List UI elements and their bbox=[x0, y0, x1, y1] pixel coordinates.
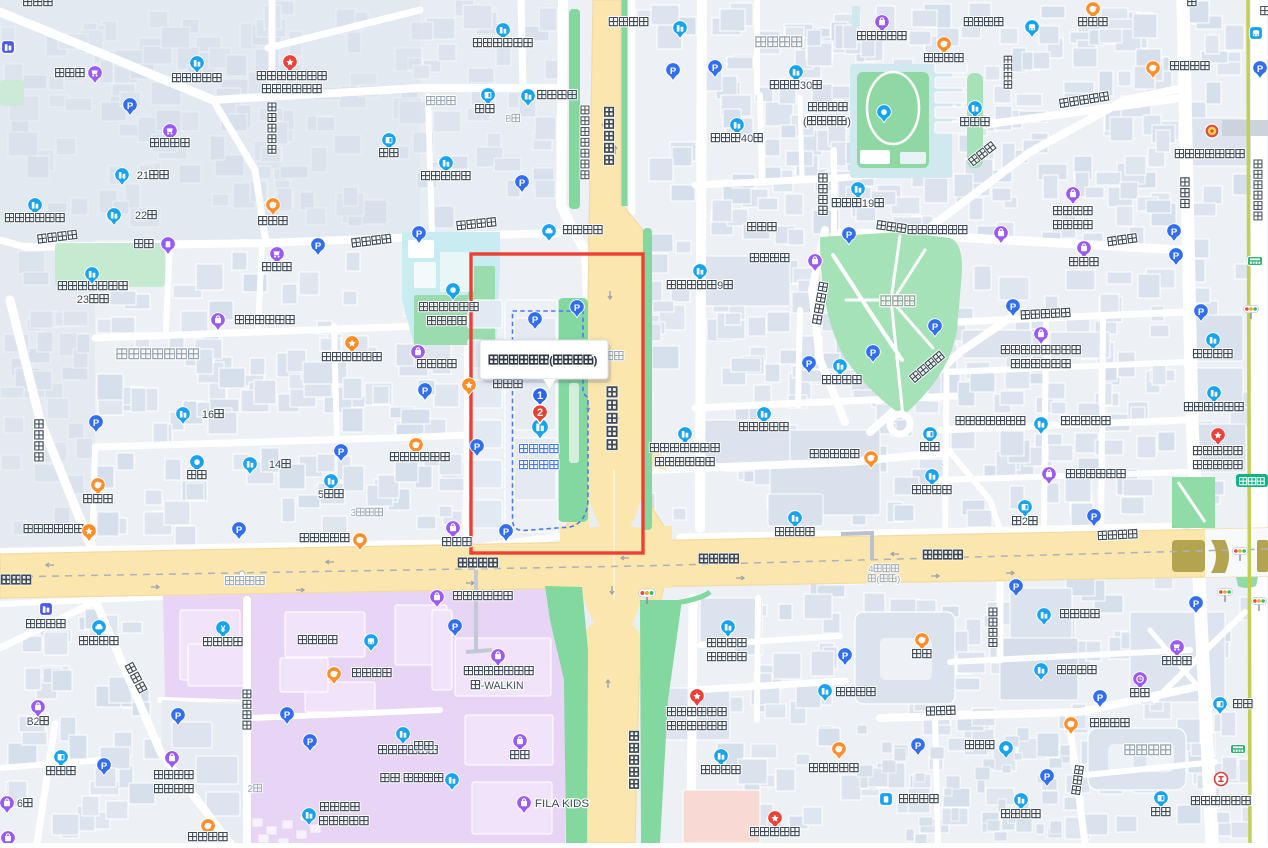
svg-text:): ) bbox=[594, 355, 598, 367]
svg-text:P: P bbox=[932, 322, 939, 333]
svg-text:14: 14 bbox=[269, 459, 281, 471]
svg-text:40: 40 bbox=[741, 133, 753, 145]
svg-text:P: P bbox=[1013, 582, 1020, 593]
svg-text:P: P bbox=[670, 66, 677, 77]
svg-text:P: P bbox=[315, 241, 322, 252]
svg-text:¥: ¥ bbox=[220, 624, 225, 634]
svg-text:P: P bbox=[175, 711, 182, 722]
svg-text:19: 19 bbox=[862, 198, 874, 210]
svg-text:P: P bbox=[474, 442, 481, 453]
svg-text:P: P bbox=[1257, 64, 1264, 75]
svg-text:P: P bbox=[452, 622, 459, 633]
svg-text:9: 9 bbox=[717, 280, 723, 292]
svg-text:): ) bbox=[847, 116, 851, 128]
svg-text:23: 23 bbox=[77, 294, 89, 306]
svg-text:2: 2 bbox=[1022, 516, 1028, 528]
svg-text:P: P bbox=[284, 710, 291, 721]
svg-text:6: 6 bbox=[17, 798, 23, 810]
svg-text:P: P bbox=[503, 527, 510, 538]
svg-text:16: 16 bbox=[202, 409, 214, 421]
svg-text:P: P bbox=[416, 229, 423, 240]
svg-text:B2: B2 bbox=[27, 716, 40, 728]
svg-text:P: P bbox=[236, 525, 243, 536]
svg-text:P: P bbox=[1173, 251, 1180, 262]
svg-text:P: P bbox=[915, 741, 922, 752]
svg-text:P: P bbox=[842, 651, 849, 662]
svg-text:21: 21 bbox=[137, 170, 149, 182]
svg-text:P: P bbox=[307, 737, 314, 748]
svg-text:P: P bbox=[1044, 772, 1051, 783]
svg-text:P: P bbox=[806, 359, 813, 370]
svg-text:22: 22 bbox=[135, 210, 147, 222]
svg-text:P: P bbox=[338, 447, 345, 458]
svg-text:P: P bbox=[101, 761, 108, 772]
svg-text:P: P bbox=[532, 315, 539, 326]
svg-text:-WALKIN: -WALKIN bbox=[481, 680, 524, 692]
svg-text:P: P bbox=[846, 230, 853, 241]
svg-text:P: P bbox=[1198, 307, 1205, 318]
svg-text:P: P bbox=[93, 418, 100, 429]
svg-text:): ) bbox=[897, 574, 900, 585]
svg-text:P: P bbox=[870, 348, 877, 359]
svg-text:P: P bbox=[519, 178, 526, 189]
svg-text:4: 4 bbox=[868, 564, 873, 575]
svg-text:P: P bbox=[574, 303, 581, 314]
svg-text:P: P bbox=[1171, 227, 1178, 238]
svg-text:5: 5 bbox=[318, 489, 324, 501]
svg-text:P: P bbox=[127, 101, 134, 112]
svg-text:P: P bbox=[712, 63, 719, 74]
svg-text:1: 1 bbox=[537, 390, 543, 402]
svg-text:2: 2 bbox=[537, 407, 543, 419]
svg-text:P: P bbox=[1091, 512, 1098, 523]
svg-text:P: P bbox=[1193, 599, 1200, 610]
svg-text:P: P bbox=[1010, 302, 1017, 313]
svg-text:P: P bbox=[1097, 693, 1104, 704]
svg-text:FILA KIDS: FILA KIDS bbox=[535, 798, 589, 810]
svg-text:P: P bbox=[422, 386, 429, 397]
svg-text:30: 30 bbox=[800, 80, 812, 92]
